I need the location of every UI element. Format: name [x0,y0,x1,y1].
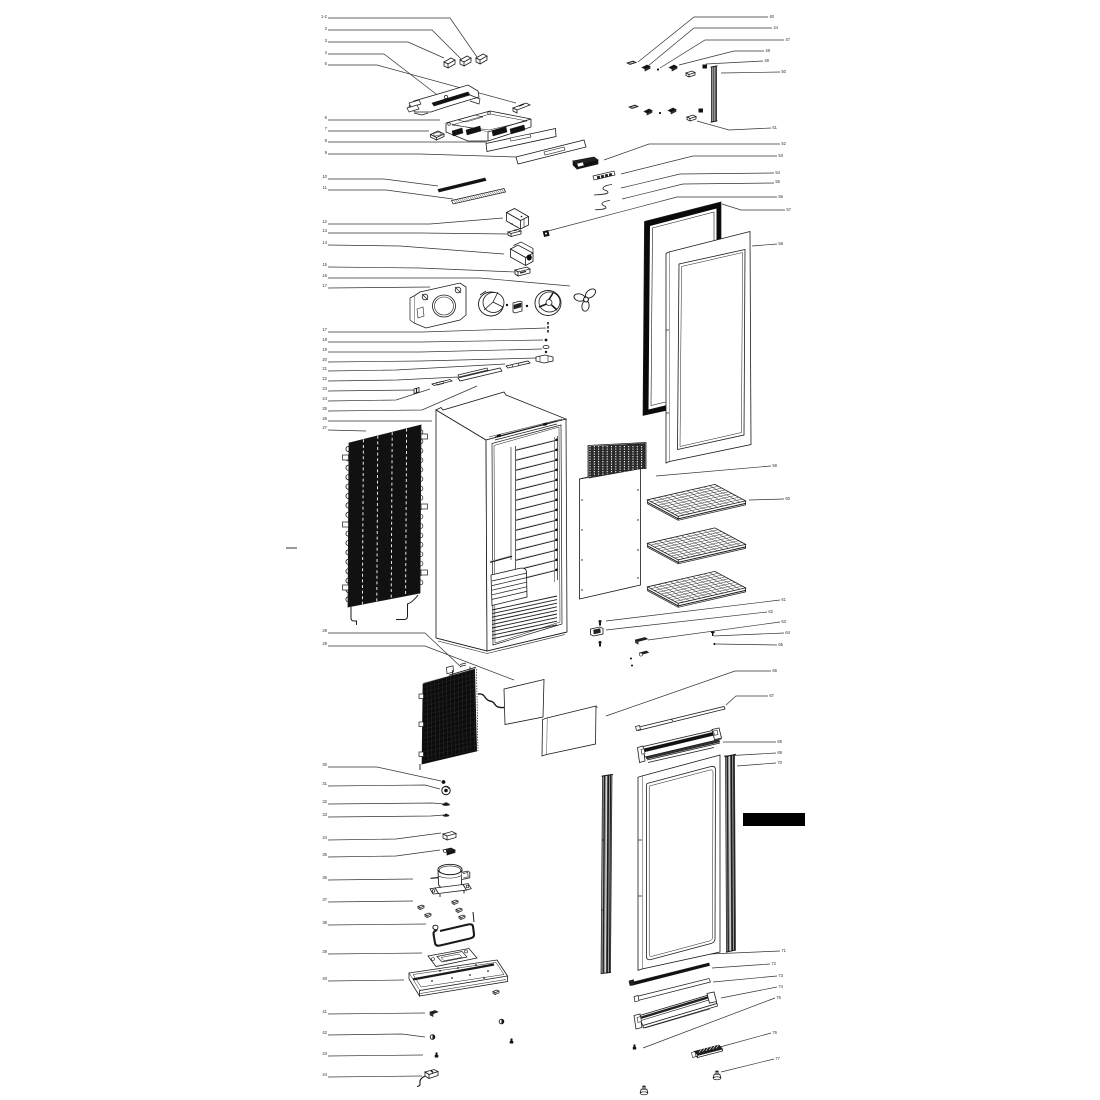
svg-text:75: 75 [776,995,781,1000]
svg-text:44: 44 [322,1072,327,1077]
svg-text:47: 47 [785,37,790,42]
svg-text:68: 68 [777,739,782,744]
svg-text:12: 12 [322,219,327,224]
svg-text:37: 37 [322,897,327,902]
svg-text:15: 15 [322,262,327,267]
svg-text:73: 73 [778,973,783,978]
svg-text:19: 19 [322,347,327,352]
svg-text:55: 55 [775,179,780,184]
svg-text:29: 29 [322,641,327,646]
svg-text:63: 63 [781,619,786,624]
svg-text:40: 40 [322,976,327,981]
svg-text:76: 76 [772,1030,777,1035]
svg-text:56: 56 [778,194,783,199]
svg-text:49: 49 [764,58,769,63]
svg-text:70: 70 [777,760,782,765]
svg-text:20: 20 [322,357,327,362]
svg-text:62: 62 [768,609,773,614]
svg-text:54: 54 [775,170,780,175]
svg-text:34: 34 [322,835,327,840]
svg-text:60: 60 [785,496,790,501]
svg-text:71: 71 [781,948,786,953]
svg-text:59: 59 [772,463,777,468]
svg-text:17: 17 [322,283,327,288]
svg-text:35: 35 [322,852,327,857]
svg-text:14: 14 [322,240,327,245]
svg-text:74: 74 [778,984,783,989]
svg-text:13: 13 [322,228,327,233]
svg-text:42: 42 [322,1030,327,1035]
svg-text:17: 17 [322,327,327,332]
svg-text:31: 31 [322,781,327,786]
svg-text:64: 64 [785,630,790,635]
svg-text:61: 61 [781,597,786,602]
svg-text:44: 44 [773,25,778,30]
svg-text:66: 66 [772,668,777,673]
svg-text:11: 11 [323,185,328,190]
svg-text:27: 27 [322,425,327,430]
svg-text:36: 36 [322,875,327,880]
svg-text:43: 43 [322,1051,327,1056]
svg-text:28: 28 [322,628,327,633]
svg-text:40: 40 [769,14,774,19]
svg-text:16: 16 [322,273,327,278]
svg-text:39: 39 [322,949,327,954]
svg-text:52: 52 [781,141,786,146]
svg-text:50: 50 [781,69,786,74]
svg-text:53: 53 [778,153,783,158]
svg-text:57: 57 [786,207,791,212]
svg-text:30: 30 [322,762,327,767]
svg-text:26: 26 [322,416,327,421]
svg-text:41: 41 [322,1009,327,1014]
svg-text:23: 23 [322,386,327,391]
svg-text:25: 25 [322,406,327,411]
svg-text:32: 32 [322,799,327,804]
svg-text:33: 33 [322,812,327,817]
svg-text:21: 21 [322,366,327,371]
svg-text:18: 18 [322,337,327,342]
svg-text:38: 38 [322,920,327,925]
svg-text:24: 24 [322,396,327,401]
svg-text:72: 72 [771,961,776,966]
svg-text:51: 51 [772,125,777,130]
svg-text:48: 48 [765,48,770,53]
svg-text:1-2: 1-2 [321,14,328,19]
svg-text:10: 10 [322,174,327,179]
svg-text:22: 22 [322,376,327,381]
svg-text:77: 77 [775,1056,780,1061]
svg-text:65: 65 [778,642,783,647]
svg-text:58: 58 [778,241,783,246]
svg-text:67: 67 [769,693,774,698]
svg-text:69: 69 [777,750,782,755]
